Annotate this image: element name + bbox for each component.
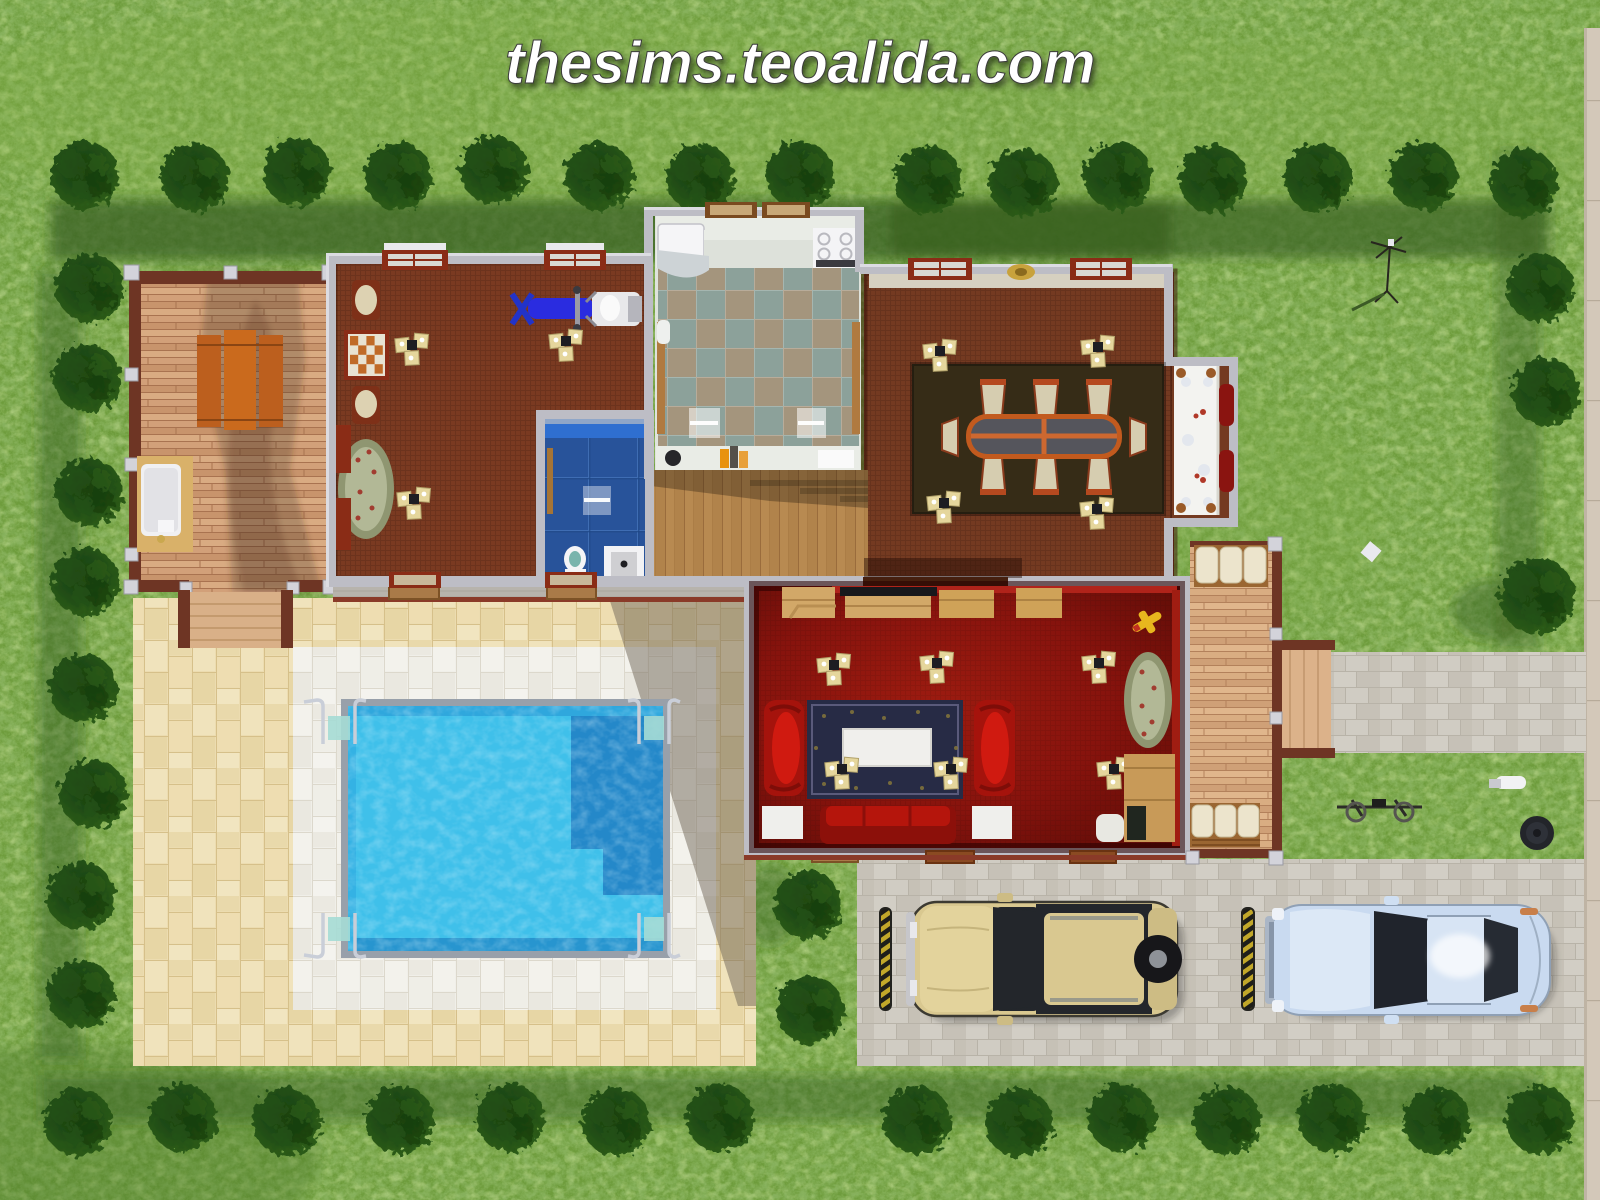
svg-text:thesims.teoalida.com: thesims.teoalida.com	[505, 30, 1095, 96]
